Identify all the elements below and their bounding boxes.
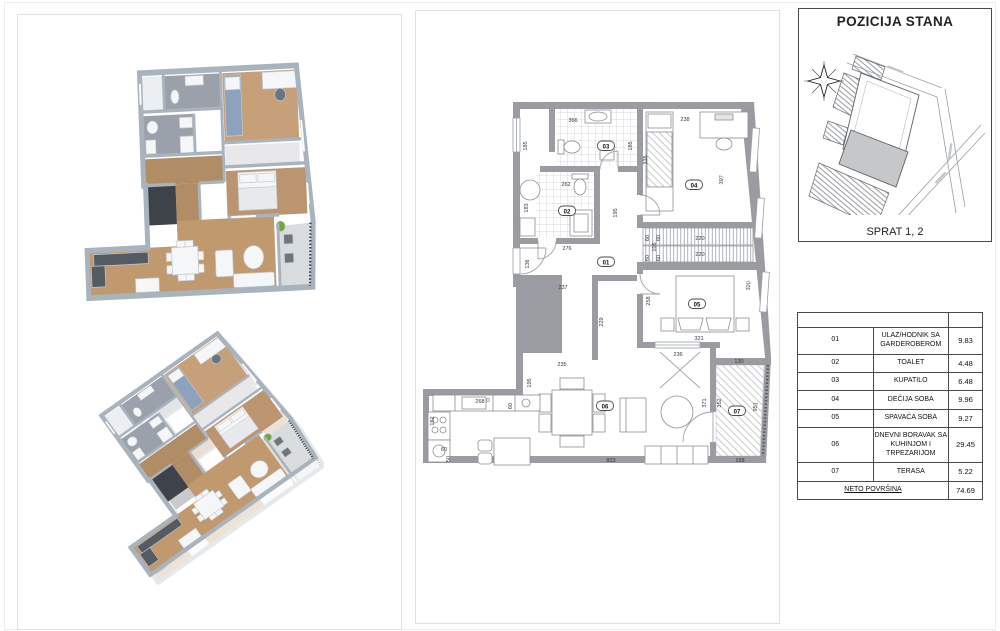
- site-map: [799, 33, 989, 215]
- dimension-label: 152: [430, 416, 436, 425]
- dimension-label: 136: [525, 259, 531, 268]
- floorplan-2d: 3661851852383353972621831952761362376010…: [405, 0, 785, 631]
- dimension-label: 60: [645, 235, 651, 241]
- render-3d-top-view: [80, 62, 316, 302]
- room-number-label: 02: [564, 209, 571, 215]
- map-title: POZICIJA STANA: [799, 9, 991, 29]
- total-label: NETO POVRŠINA: [798, 481, 949, 499]
- dimension-label: 276: [562, 246, 571, 252]
- table-row: 02TOALET4.48: [798, 354, 983, 372]
- dimension-label: 236: [673, 352, 682, 358]
- dimension-label: 195: [527, 378, 533, 387]
- table-row: 06DNEVNI BORAVAK SA KUHINJOM I TRPEZARIJ…: [798, 428, 983, 463]
- room-number-label: 03: [603, 144, 610, 150]
- dimension-label: 235: [557, 362, 566, 368]
- position-map-panel: POZICIJA STANA: [798, 8, 992, 242]
- dimension-label: 823: [606, 458, 615, 464]
- room-number-label: 06: [602, 404, 609, 410]
- dimension-label: 352: [717, 398, 723, 407]
- table-header-row: [798, 313, 983, 328]
- dimension-label: 220: [695, 252, 704, 258]
- table-row: 03KUPATILO6.48: [798, 372, 983, 390]
- dimension-label: 183: [524, 203, 530, 212]
- table-row: 04DEČIJA SOBA9.96: [798, 391, 983, 409]
- dimension-label: 220: [695, 236, 704, 242]
- dimension-label: 60: [441, 447, 447, 453]
- dimension-label: 321: [694, 336, 703, 342]
- dimension-label: 258: [646, 296, 652, 305]
- room-number-label: 07: [734, 409, 741, 415]
- dimension-label: 185: [523, 141, 529, 150]
- dimension-label: 335: [643, 155, 649, 164]
- architectural-sheet: { "map_panel": { "title": "POZICIJA STAN…: [0, 0, 1000, 631]
- dimension-label: 105: [652, 242, 658, 251]
- dimension-label: 268: [475, 399, 484, 405]
- table-row: 01ULAZ/HODNIK SA GARDEROBEROM9.83: [798, 328, 983, 355]
- dimension-label: 185: [628, 141, 634, 150]
- dimension-label: 238: [680, 117, 689, 123]
- room-number-label: 01: [603, 260, 610, 266]
- dimension-label: 951: [753, 402, 760, 412]
- dimension-label: 50: [446, 456, 452, 462]
- dimension-label: 320: [746, 281, 753, 291]
- dimension-label: 60: [508, 403, 514, 409]
- dimension-label: 366: [568, 118, 577, 124]
- table-row: 07TERASA5.22: [798, 463, 983, 481]
- dimension-label: 60: [645, 255, 651, 261]
- dimension-label: 262: [561, 182, 570, 188]
- dimension-label: 60: [656, 255, 662, 261]
- dimension-label: 237: [558, 285, 567, 291]
- dimension-label: 195: [613, 208, 619, 217]
- room-number-label: 05: [694, 302, 701, 308]
- floor-label: SPRAT 1, 2: [799, 226, 991, 238]
- dimension-label: 397: [719, 175, 726, 185]
- dimension-label: 60: [656, 235, 662, 241]
- room-area-table: 01ULAZ/HODNIK SA GARDEROBEROM9.8302TOALE…: [797, 312, 983, 500]
- dimension-label: 130: [734, 359, 743, 365]
- render-3d-isometric-view: [48, 318, 324, 618]
- table-row: 05SPAVAĆA SOBA9.27: [798, 409, 983, 427]
- dimension-label: 168: [735, 458, 744, 464]
- room-number-label: 04: [691, 183, 698, 189]
- dimension-label: 229: [599, 317, 605, 326]
- total-area: 74.69: [949, 481, 983, 499]
- dimension-label: 371: [702, 398, 708, 407]
- table-total-row: NETO POVRŠINA 74.69: [798, 481, 983, 499]
